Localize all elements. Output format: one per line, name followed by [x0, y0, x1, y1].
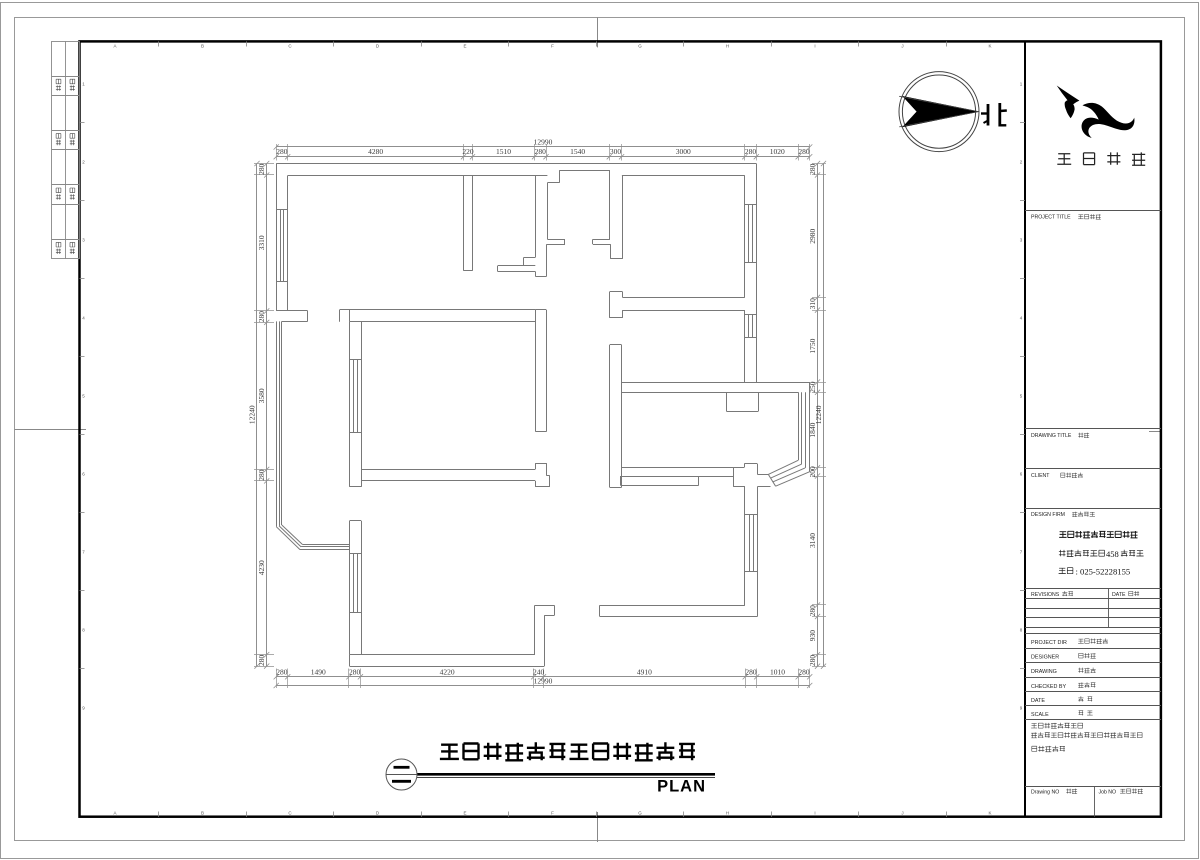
svg-text:F: F: [551, 811, 554, 816]
svg-text:280: 280: [745, 667, 757, 676]
svg-text:1540: 1540: [570, 147, 585, 156]
svg-text:3580: 3580: [257, 388, 266, 403]
svg-text:4220: 4220: [440, 667, 455, 676]
svg-text:280: 280: [745, 147, 757, 156]
svg-text:930: 930: [808, 630, 817, 642]
svg-text:DESIGN FIRM: DESIGN FIRM: [1031, 512, 1065, 518]
svg-text:I: I: [814, 811, 815, 816]
svg-text:280: 280: [276, 667, 288, 676]
svg-text:280: 280: [257, 655, 266, 667]
svg-text:Drawing NO: Drawing NO: [1031, 790, 1059, 796]
svg-text:1490: 1490: [311, 667, 326, 676]
svg-text:I: I: [814, 44, 815, 49]
svg-text:3310: 3310: [257, 235, 266, 250]
svg-text:4230: 4230: [257, 560, 266, 575]
svg-text:1840: 1840: [808, 422, 817, 437]
svg-text:CLIENT: CLIENT: [1031, 473, 1050, 479]
svg-text:: 025-52228155: : 025-52228155: [1076, 567, 1131, 577]
svg-text:K: K: [988, 44, 991, 49]
svg-text:280: 280: [257, 163, 266, 175]
svg-text:280: 280: [808, 163, 817, 175]
svg-text:DATE: DATE: [1112, 592, 1126, 598]
svg-text:A: A: [113, 811, 116, 816]
svg-text:3140: 3140: [808, 533, 817, 548]
svg-text:G: G: [638, 811, 642, 816]
svg-text:J: J: [901, 44, 903, 49]
svg-text:280: 280: [257, 469, 266, 481]
svg-text:12240: 12240: [247, 405, 256, 424]
svg-text:REVISIONS: REVISIONS: [1031, 592, 1060, 598]
svg-text:2980: 2980: [808, 228, 817, 243]
svg-text:280: 280: [798, 147, 810, 156]
svg-text:12240: 12240: [814, 405, 823, 424]
svg-text:G: G: [638, 44, 642, 49]
svg-text:H: H: [726, 811, 729, 816]
svg-text:B: B: [201, 811, 204, 816]
svg-text:12990: 12990: [534, 677, 553, 686]
svg-text:PROJECT DIR: PROJECT DIR: [1031, 640, 1067, 646]
svg-text:280: 280: [808, 655, 817, 667]
svg-text:300: 300: [610, 147, 622, 156]
svg-text:280: 280: [349, 667, 361, 676]
svg-text:A: A: [113, 44, 116, 49]
svg-text:220: 220: [462, 147, 474, 156]
svg-text:280: 280: [535, 147, 547, 156]
svg-text:SCALE: SCALE: [1031, 712, 1049, 718]
svg-text:4280: 4280: [368, 147, 383, 156]
svg-text:280: 280: [808, 605, 817, 617]
svg-text:DESIGNER: DESIGNER: [1031, 655, 1059, 661]
svg-text:1020: 1020: [770, 147, 785, 156]
svg-text:4910: 4910: [637, 667, 652, 676]
svg-text:250: 250: [808, 381, 817, 393]
svg-text:DATE: DATE: [1031, 698, 1045, 704]
svg-text:Job NO: Job NO: [1099, 790, 1117, 796]
svg-text:DRAWING TITLE: DRAWING TITLE: [1031, 433, 1072, 439]
svg-text:B: B: [201, 44, 204, 49]
svg-text:280: 280: [276, 147, 288, 156]
svg-text:PROJECT TITLE: PROJECT TITLE: [1031, 215, 1071, 221]
svg-text:H: H: [726, 44, 729, 49]
svg-text:458: 458: [1106, 549, 1119, 559]
svg-text:1510: 1510: [496, 147, 511, 156]
svg-text:DRAWING: DRAWING: [1031, 669, 1057, 675]
svg-text:3000: 3000: [676, 147, 691, 156]
svg-text:E: E: [463, 811, 466, 816]
svg-text:200: 200: [808, 466, 817, 478]
svg-text:1750: 1750: [808, 338, 817, 353]
svg-text:12990: 12990: [534, 138, 553, 147]
svg-text:E: E: [463, 44, 466, 49]
svg-text:K: K: [988, 811, 991, 816]
svg-text:280: 280: [257, 311, 266, 323]
svg-text:1010: 1010: [770, 667, 785, 676]
svg-text:240: 240: [533, 667, 545, 676]
svg-text:J: J: [901, 811, 903, 816]
svg-text:F: F: [551, 44, 554, 49]
svg-text:PLAN: PLAN: [657, 778, 706, 796]
svg-text:CHECKED BY: CHECKED BY: [1031, 684, 1066, 690]
svg-text:280: 280: [798, 667, 810, 676]
svg-text:310: 310: [808, 298, 817, 310]
